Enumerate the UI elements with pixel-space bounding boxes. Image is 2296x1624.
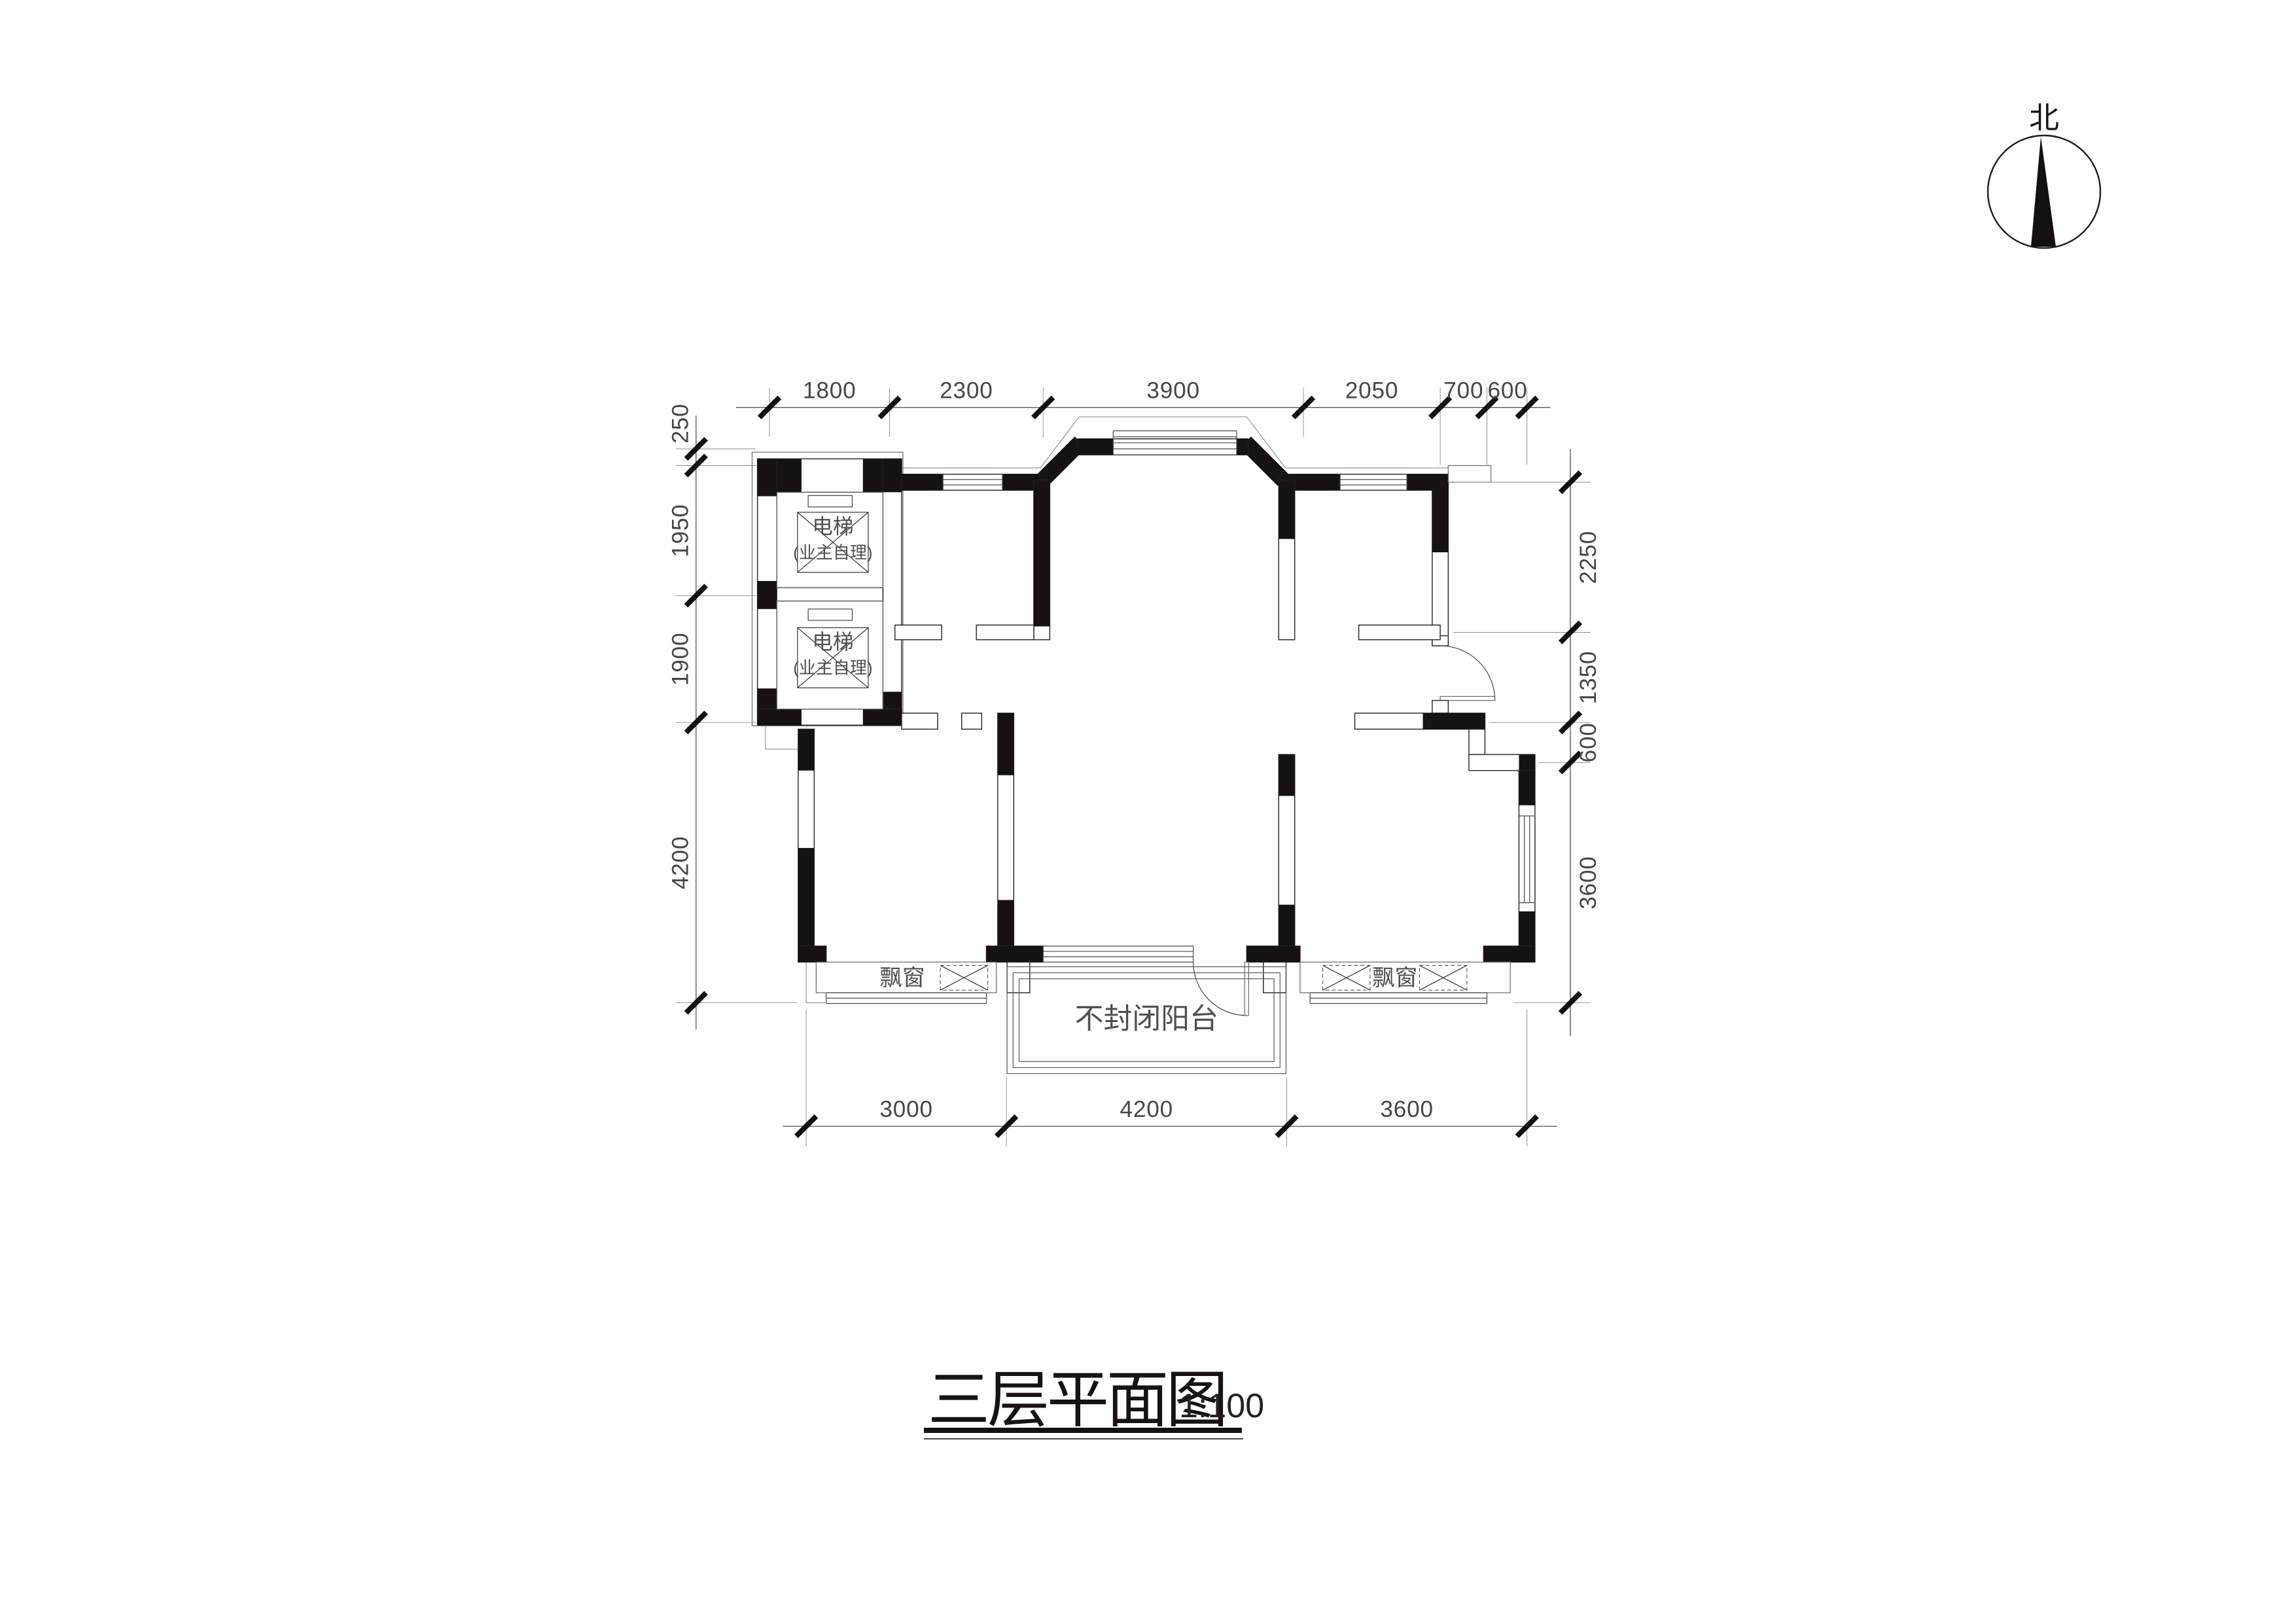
nw-bedroom-south-wall <box>895 625 942 639</box>
elevator-note-label: (业主自理) <box>793 658 872 678</box>
title-block: 三层平面图 1:100 <box>924 1366 1264 1439</box>
core-east-wall <box>883 459 902 725</box>
floor-plan: 电梯 (业主自理) 电梯 (业主自理) <box>668 378 1601 1146</box>
scale-label: 1:100 <box>1179 1387 1264 1425</box>
entry-door-arc <box>1440 646 1495 701</box>
north-arrow-icon <box>2031 137 2056 247</box>
ne-bedroom-south-wall <box>1359 625 1440 639</box>
dim-label: 3000 <box>879 1097 933 1122</box>
balcony-label: 不封闭阳台 <box>1075 1002 1218 1034</box>
title-underline-thick <box>924 1428 1242 1433</box>
dim-label: 1800 <box>803 378 857 403</box>
east-step-wall <box>1469 729 1485 754</box>
balcony-door-leaf <box>1245 962 1248 1015</box>
dim-label: 3600 <box>1576 856 1601 909</box>
dim-label: 700 <box>1443 378 1483 403</box>
south-facade: 飘窗 飘窗 <box>798 946 1535 1074</box>
west-facade <box>766 726 814 946</box>
dim-label: 1350 <box>1576 651 1601 705</box>
elevator-door-2 <box>808 609 852 620</box>
dim-label: 2250 <box>1576 531 1601 584</box>
bay-window-right-label: 飘窗 <box>1372 965 1417 991</box>
ac-ledge <box>1448 466 1491 483</box>
dim-label: 4200 <box>1120 1097 1174 1122</box>
living-room-bay <box>1042 431 1283 480</box>
east-side <box>1355 482 1535 946</box>
bay-cant-east <box>1245 442 1283 480</box>
elevator-door-1 <box>808 495 852 506</box>
balcony-sliding-window <box>1043 946 1193 962</box>
elevator-label: 电梯 <box>812 630 853 654</box>
balcony: 不封闭阳台 <box>1007 962 1286 1073</box>
elevator-shaft-2: 电梯 (业主自理) <box>777 601 883 709</box>
north-facade <box>902 417 1491 490</box>
entry-door <box>1432 636 1495 713</box>
shaft-divider-wall <box>777 588 883 601</box>
dim-label: 1950 <box>668 504 694 557</box>
elevator-note-label: (业主自理) <box>793 542 872 562</box>
dim-label: 3600 <box>1380 1097 1434 1122</box>
floor-plan-canvas: 电梯 (业主自理) 电梯 (业主自理) <box>0 0 2296 1624</box>
dim-label: 1900 <box>668 633 694 686</box>
entry-door-leaf <box>1440 696 1495 700</box>
bay-cant-west <box>1042 442 1080 480</box>
bay-window-left: 飘窗 <box>806 962 997 1003</box>
compass-north-label: 北 <box>2029 101 2059 135</box>
dim-label: 4200 <box>668 836 694 890</box>
elevator-label: 电梯 <box>812 515 853 538</box>
dim-label: 600 <box>1488 378 1528 403</box>
dim-label: 600 <box>1576 722 1601 762</box>
dim-label: 250 <box>668 404 694 444</box>
dim-label: 2300 <box>940 378 993 403</box>
dim-label: 2050 <box>1345 378 1399 403</box>
north-compass: 北 <box>1988 101 2100 248</box>
bay-window-right: 飘窗 <box>1300 962 1510 1003</box>
elevator-core: 电梯 (业主自理) 电梯 (业主自理) <box>752 452 903 726</box>
dim-label: 3900 <box>1146 378 1200 403</box>
elevator-shaft-1: 电梯 (业主自理) <box>777 492 883 588</box>
bay-window-left-label: 飘窗 <box>879 965 925 991</box>
